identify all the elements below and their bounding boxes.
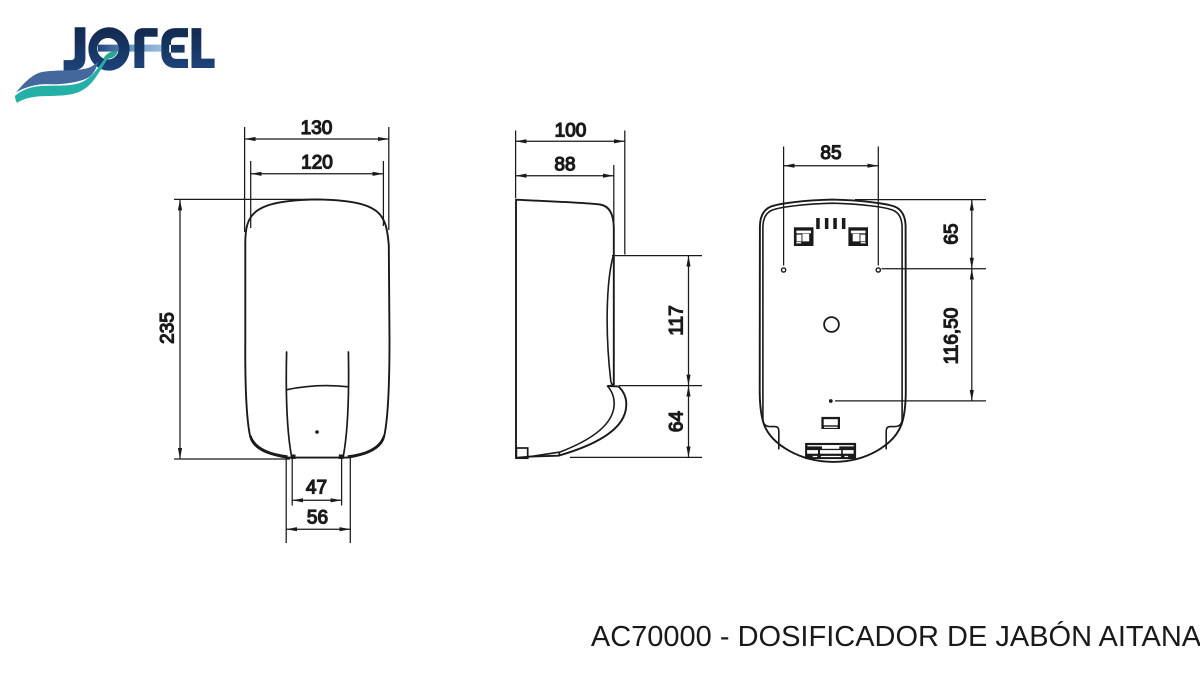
svg-text:130: 130	[301, 118, 333, 139]
svg-text:117: 117	[666, 305, 687, 335]
svg-text:120: 120	[301, 153, 333, 174]
svg-text:65: 65	[942, 223, 963, 244]
svg-text:100: 100	[555, 120, 587, 141]
svg-text:47: 47	[306, 478, 327, 499]
svg-text:56: 56	[307, 508, 328, 529]
svg-text:235: 235	[158, 312, 179, 344]
svg-text:85: 85	[820, 143, 841, 164]
svg-text:88: 88	[554, 154, 575, 175]
svg-text:AC70000 - DOSIFICADOR DE JABÓN: AC70000 - DOSIFICADOR DE JABÓN AITANA	[591, 620, 1200, 653]
svg-text:64: 64	[666, 411, 687, 433]
svg-text:116,50: 116,50	[942, 308, 963, 365]
